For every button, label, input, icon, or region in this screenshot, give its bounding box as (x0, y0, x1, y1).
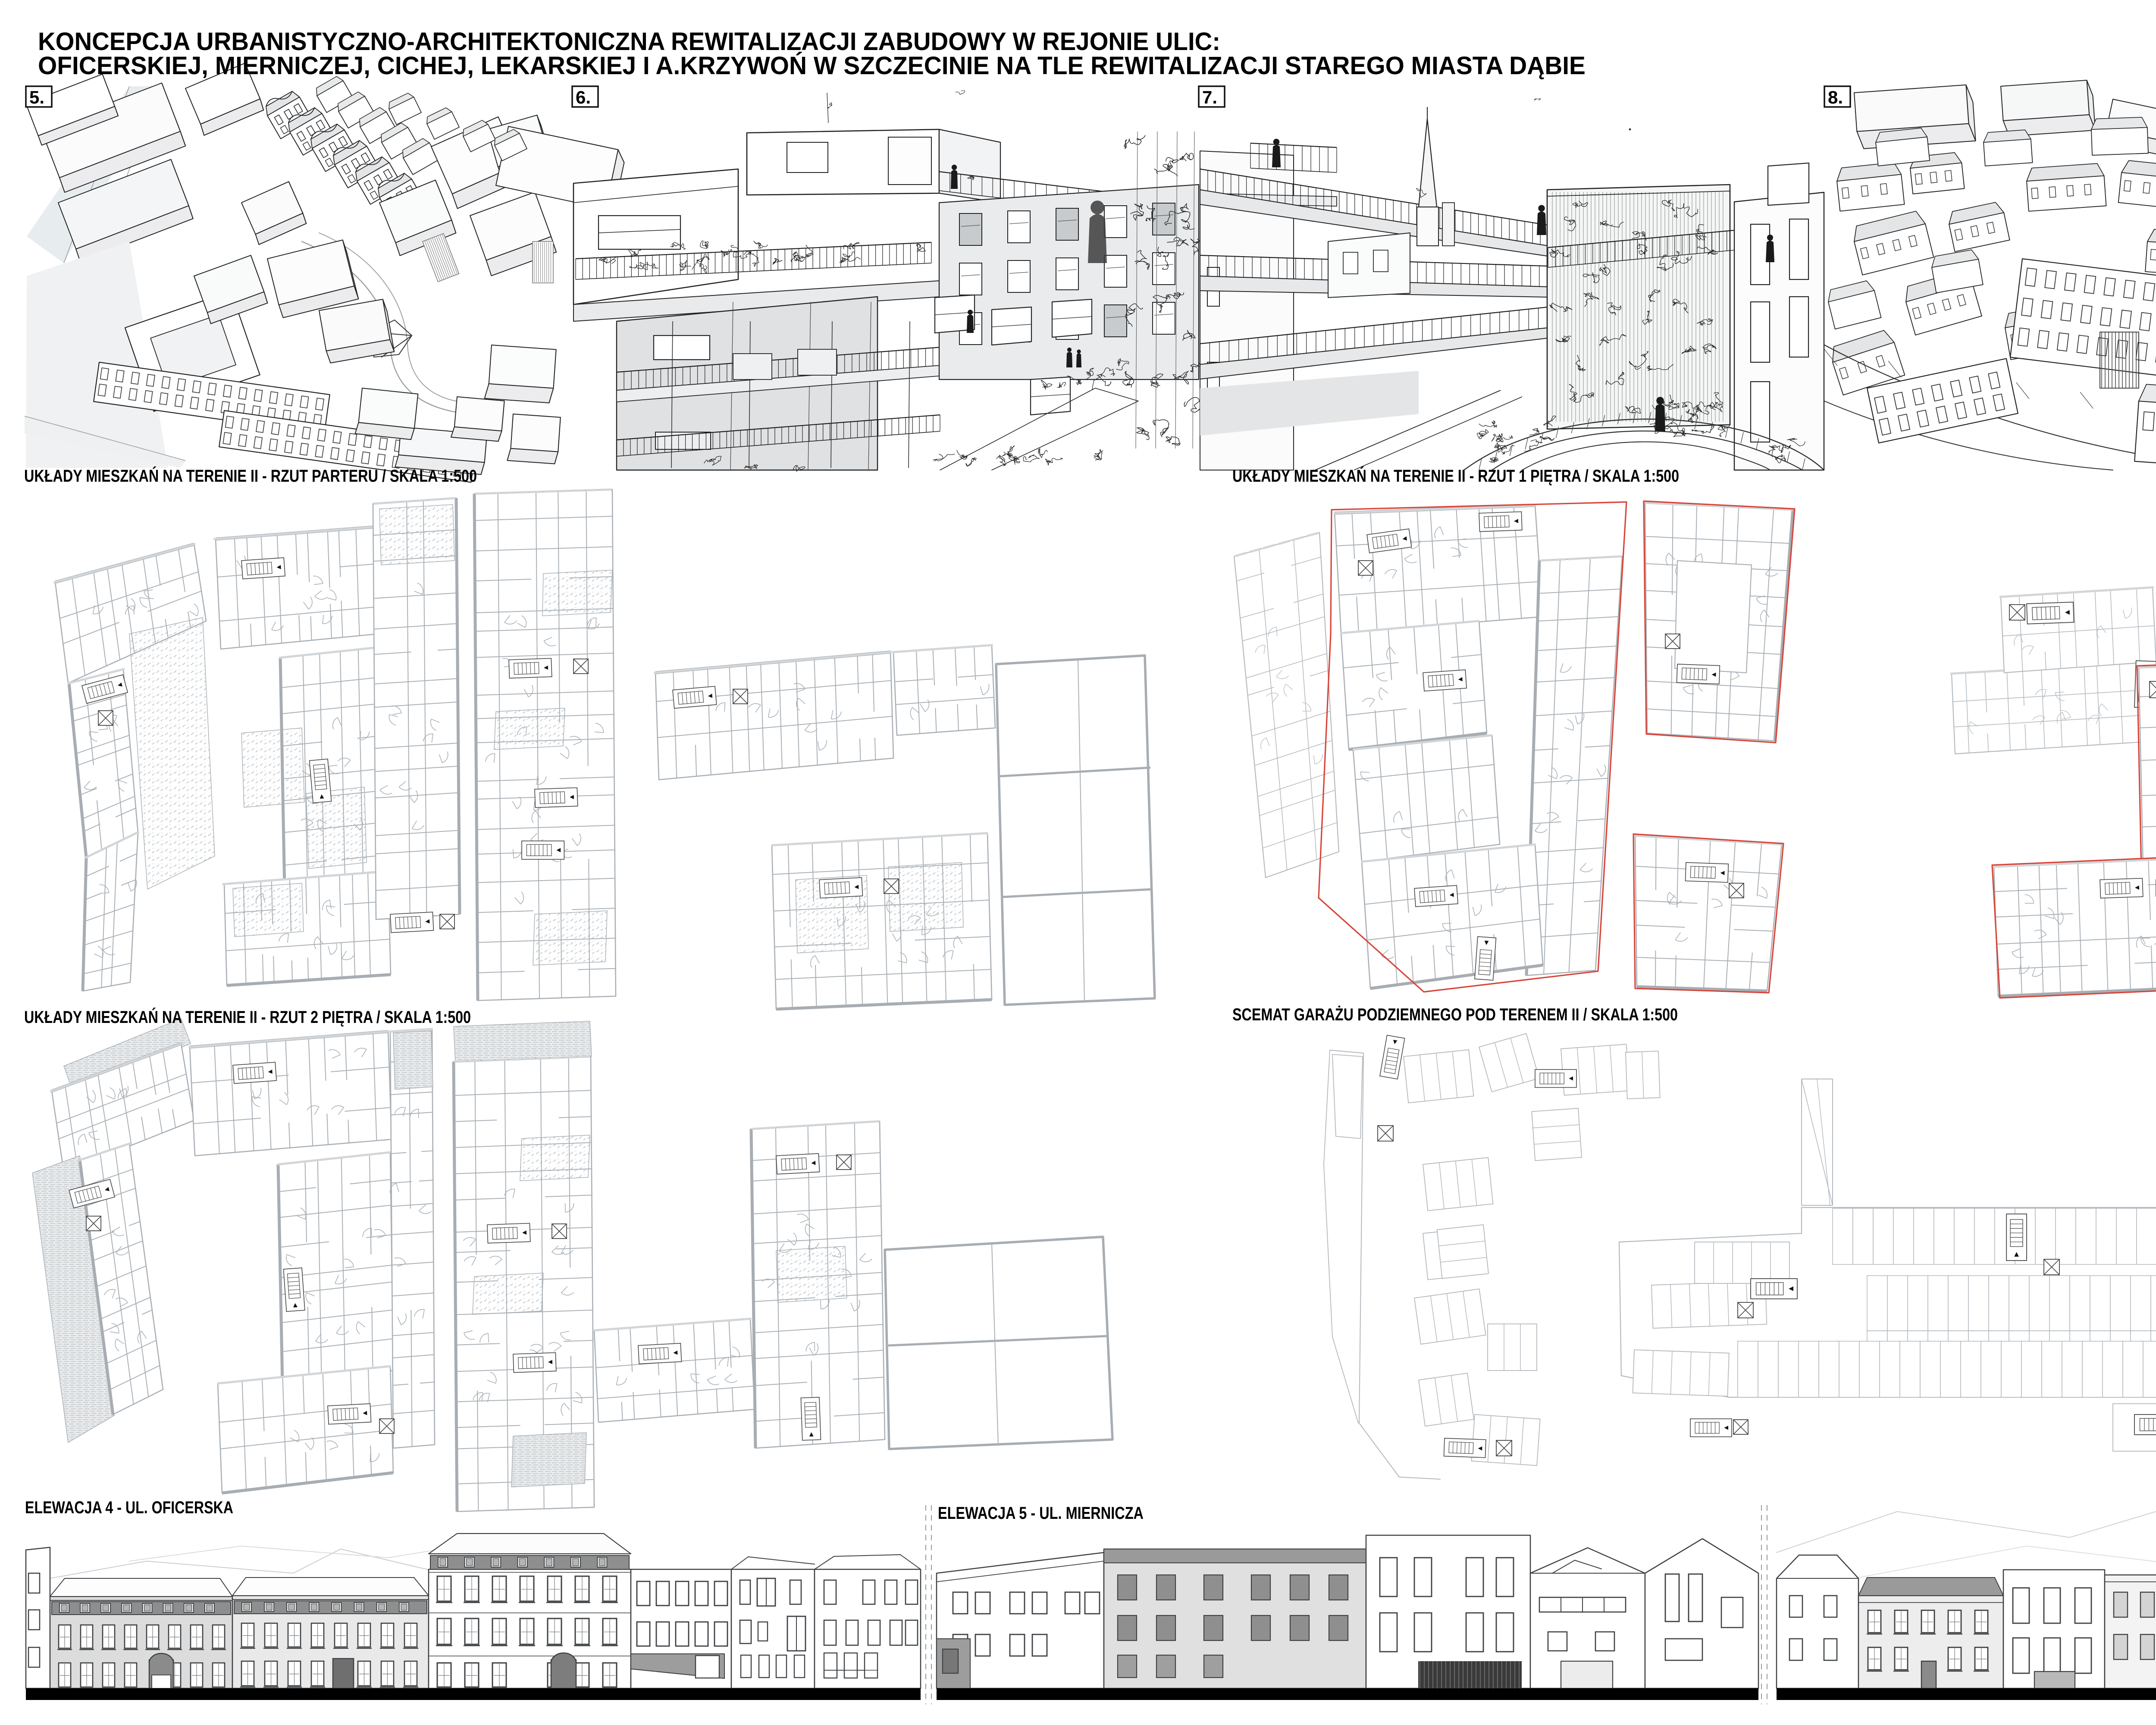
svg-text:UKŁADY MIESZKAŃ NA TERENIE II: UKŁADY MIESZKAŃ NA TERENIE II - RZUT 1 P… (1232, 466, 1679, 486)
svg-text:SCEMAT GARAŻU PODZIEMNEGO POD: SCEMAT GARAŻU PODZIEMNEGO POD TERENEM II… (1232, 1005, 1678, 1024)
svg-text:6.: 6. (576, 87, 591, 107)
svg-text:UKŁADY MIESZKAŃ NA TERENIE II: UKŁADY MIESZKAŃ NA TERENIE II - RZUT 2 P… (24, 1007, 471, 1027)
svg-text:ELEWACJA 5 - UL. MIERNICZA: ELEWACJA 5 - UL. MIERNICZA (938, 1504, 1144, 1523)
svg-text:UKŁADY MIESZKAŃ NA TERENIE II: UKŁADY MIESZKAŃ NA TERENIE II - RZUT PAR… (24, 466, 477, 486)
svg-text:8.: 8. (1828, 87, 1843, 107)
svg-text:5.: 5. (29, 87, 44, 107)
svg-text:7.: 7. (1202, 87, 1217, 107)
svg-text:ELEWACJA 4 - UL. OFICERSKA: ELEWACJA 4 - UL. OFICERSKA (25, 1498, 233, 1517)
svg-text:OFICERSKIEJ, MIERNICZEJ, CICHE: OFICERSKIEJ, MIERNICZEJ, CICHEJ, LEKARSK… (38, 52, 1586, 80)
